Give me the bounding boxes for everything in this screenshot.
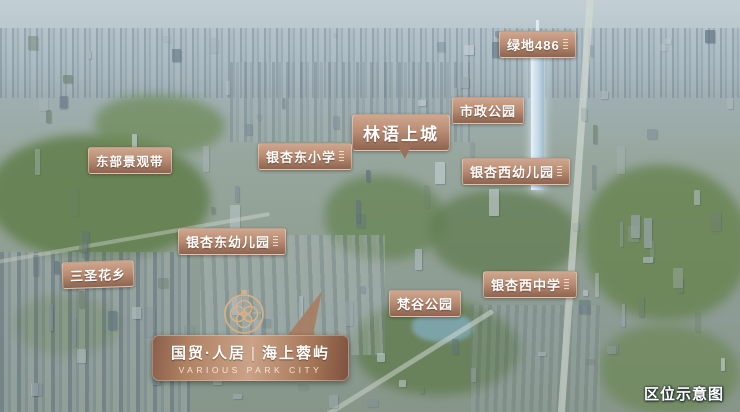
label-text: 银杏西幼儿园 — [470, 162, 554, 181]
park-patch — [430, 190, 580, 280]
park-patch — [585, 165, 740, 320]
label-text: 银杏东幼儿园 — [186, 232, 270, 251]
label-text: 三圣花乡 — [70, 264, 127, 285]
label-yinxing-east-primary-school: 银杏东小学 — [258, 143, 352, 170]
label-yinxing-west-middle-school: 银杏西中学 — [483, 271, 577, 298]
label-sansheng-flower-village: 三圣花乡 — [62, 260, 135, 289]
brand-left: 国贸·人居 — [171, 345, 246, 362]
label-yinxing-east-kindergarten: 银杏东幼儿园 — [178, 228, 286, 255]
brand-name-cn: 国贸·人居|海上蓉屿 — [171, 342, 330, 363]
label-text: 绿地486 — [507, 35, 560, 54]
annotation-mark — [339, 151, 344, 162]
building-cluster — [470, 305, 600, 412]
label-text: 银杏西中学 — [491, 275, 561, 294]
annotation-mark — [563, 39, 568, 50]
label-text: 银杏东小学 — [266, 147, 336, 166]
label-text: 梵谷公园 — [397, 294, 453, 313]
annotation-mark — [564, 279, 569, 290]
label-text: 市政公园 — [460, 101, 516, 120]
brand-banner: 国贸·人居|海上蓉屿 VARIOUS PARK CITY — [152, 335, 349, 381]
annotation-mark — [273, 236, 278, 247]
brand-right: 海上蓉屿 — [262, 345, 330, 362]
location-map: 绿地486 市政公园 林语上城 东部景观带 银杏东小学 银杏西幼儿园 银杏东幼儿… — [0, 0, 740, 412]
label-municipal-park: 市政公园 — [452, 97, 524, 124]
label-greenland-486: 绿地486 — [499, 31, 576, 58]
linyu-pointer — [397, 141, 416, 159]
brand-logo-icon — [220, 288, 268, 336]
annotation-mark — [557, 166, 562, 177]
label-yinxing-west-kindergarten: 银杏西幼儿园 — [462, 158, 570, 185]
brand-divider: | — [251, 345, 257, 362]
label-text: 林语上城 — [363, 120, 439, 145]
label-fangu-park: 梵谷公园 — [389, 290, 461, 317]
map-type-caption: 区位示意图 — [644, 383, 724, 404]
label-text: 东部景观带 — [96, 151, 164, 170]
label-east-landscape-belt: 东部景观带 — [88, 147, 172, 174]
brand-name-en: VARIOUS PARK CITY — [179, 365, 323, 375]
